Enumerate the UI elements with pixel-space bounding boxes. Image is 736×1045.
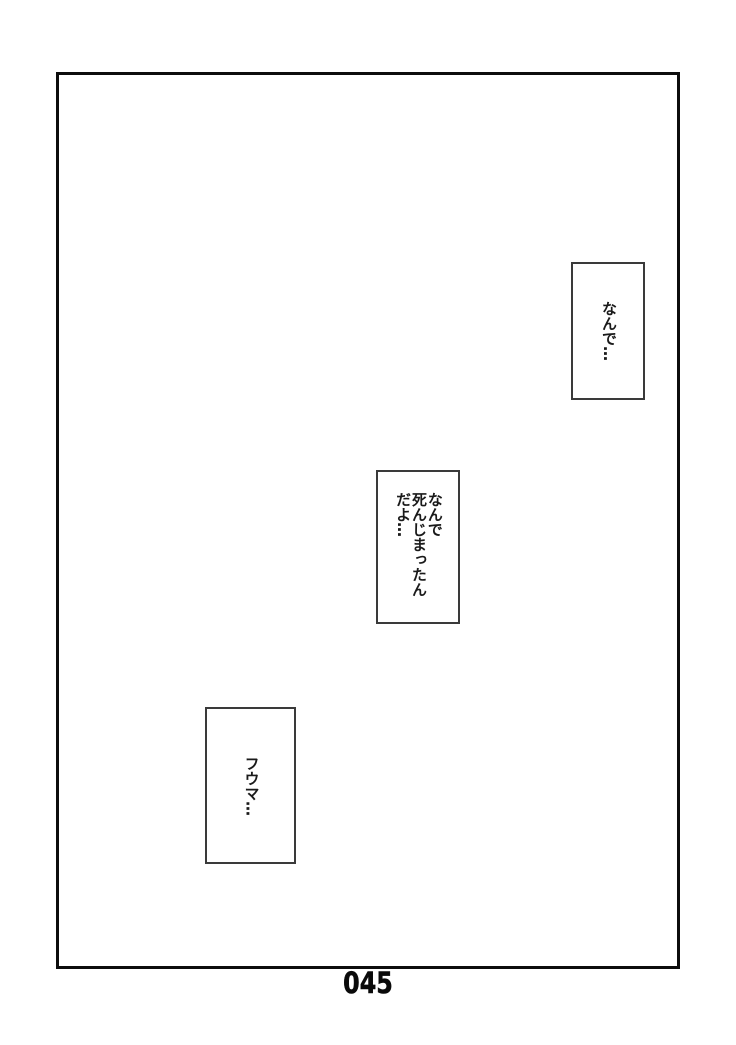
page-number: 045 [66, 969, 670, 998]
speech-text-3: フウマ… [243, 756, 259, 816]
panel-frame: なんで… なんで 死んじまったん だよ… フウマ… [56, 72, 680, 969]
speech-box-2: なんで 死んじまったん だよ… [376, 470, 460, 624]
manga-page: なんで… なんで 死んじまったん だよ… フウマ… 045 [0, 0, 736, 1045]
speech-text-2: なんで 死んじまったん だよ… [394, 492, 442, 597]
speech-box-3: フウマ… [205, 707, 296, 864]
speech-box-1: なんで… [571, 262, 645, 400]
speech-text-1: なんで… [600, 301, 616, 361]
